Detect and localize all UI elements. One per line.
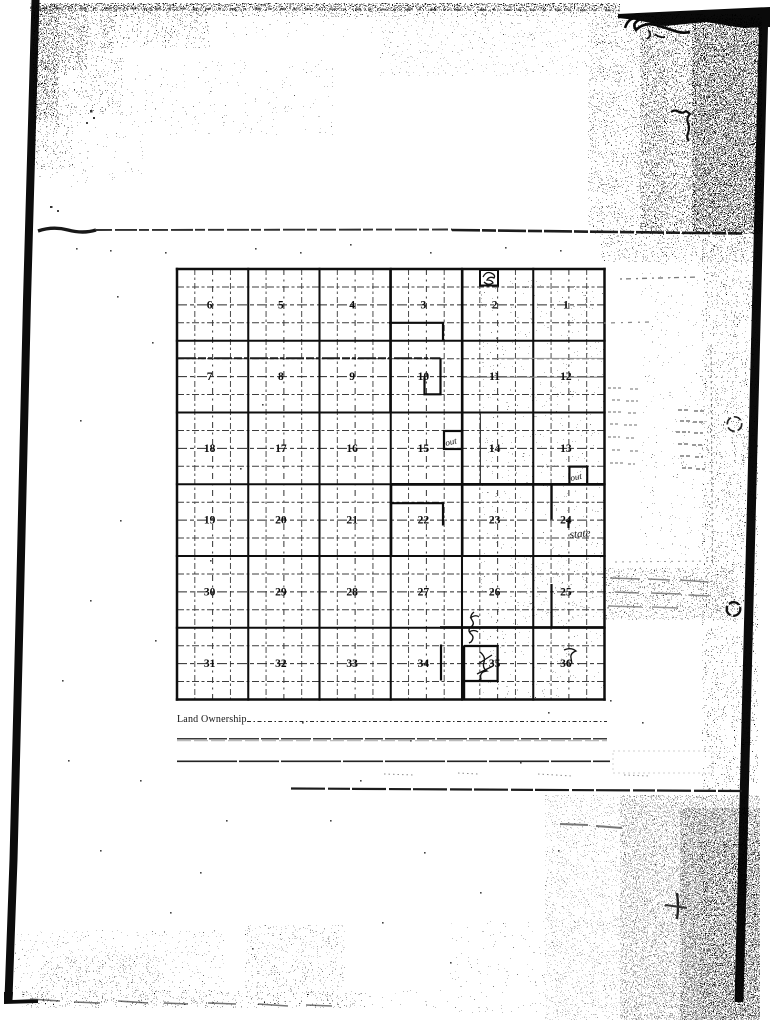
svg-text:25: 25	[560, 587, 572, 599]
svg-text:26: 26	[489, 587, 501, 599]
svg-text:15: 15	[418, 443, 430, 455]
svg-text:28: 28	[346, 587, 358, 599]
svg-text:32: 32	[275, 658, 287, 670]
svg-text:8: 8	[278, 371, 284, 383]
svg-text:31: 31	[204, 658, 216, 670]
svg-text:7: 7	[207, 371, 213, 383]
svg-text:9: 9	[349, 371, 355, 383]
svg-text:34: 34	[418, 658, 430, 670]
svg-text:12: 12	[560, 371, 572, 383]
svg-text:24: 24	[560, 515, 572, 527]
svg-text:5: 5	[278, 300, 284, 312]
svg-text:state: state	[569, 527, 591, 541]
svg-text:17: 17	[275, 443, 287, 455]
svg-text:29: 29	[275, 587, 287, 599]
svg-text:16: 16	[346, 443, 358, 455]
svg-text:30: 30	[204, 587, 216, 599]
svg-text:22: 22	[418, 515, 430, 527]
svg-text:14: 14	[489, 443, 501, 455]
svg-text:3: 3	[421, 300, 427, 312]
svg-text:11: 11	[489, 371, 500, 383]
svg-text:Land Ownership: Land Ownership	[177, 714, 247, 725]
svg-text:18: 18	[204, 443, 216, 455]
svg-text:2: 2	[492, 300, 498, 312]
svg-text:27: 27	[418, 587, 430, 599]
svg-text:out: out	[444, 435, 458, 448]
svg-text:23: 23	[489, 515, 501, 527]
svg-text:1: 1	[563, 300, 569, 312]
svg-text:13: 13	[560, 443, 572, 455]
svg-text:19: 19	[204, 515, 216, 527]
svg-text:20: 20	[275, 515, 287, 527]
svg-text:36: 36	[560, 658, 572, 670]
svg-text:6: 6	[207, 300, 213, 312]
svg-text:35: 35	[489, 658, 501, 670]
svg-text:4: 4	[349, 300, 355, 312]
svg-text:33: 33	[346, 658, 358, 670]
svg-text:21: 21	[346, 515, 358, 527]
